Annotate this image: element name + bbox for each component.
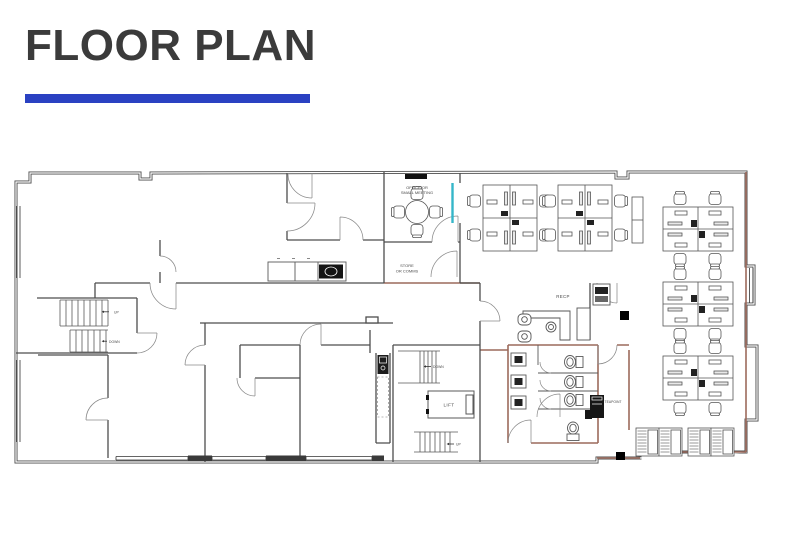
exterior-walls xyxy=(16,172,757,462)
label-stair-left-up: UP xyxy=(114,311,119,315)
desk-cluster xyxy=(663,340,733,415)
label-reception: RECP xyxy=(556,294,569,299)
desk-cluster xyxy=(467,185,552,251)
floor-plan-drawing: OFFICE OR SMALL MEETING STORE OR COMMS R… xyxy=(0,0,800,533)
teapoint-units xyxy=(585,395,604,419)
label-teapoint: TEAPOINT xyxy=(605,400,622,404)
desk-cluster xyxy=(663,266,733,341)
column xyxy=(616,452,625,460)
wc-area xyxy=(511,345,598,441)
label-stair-core-up: UP xyxy=(456,443,461,447)
label-lift: LIFT xyxy=(443,403,454,408)
reception-area xyxy=(518,284,610,342)
label-stair-left-down: DOWN xyxy=(109,340,120,344)
desk-cluster xyxy=(542,185,627,251)
label-store-line2: OR COMMS xyxy=(396,269,419,274)
stairs-left xyxy=(60,300,109,352)
kitchen-counter xyxy=(268,259,346,282)
label-office-meeting-line2: SMALL MEETING xyxy=(401,190,433,195)
label-store-line1: STORE xyxy=(400,263,414,268)
desk-cluster xyxy=(663,191,733,266)
structural-beam xyxy=(405,174,427,179)
riser-cupboard xyxy=(378,355,389,417)
windows xyxy=(17,206,754,461)
label-stair-core-down: DOWN xyxy=(433,365,444,369)
column xyxy=(620,311,629,320)
